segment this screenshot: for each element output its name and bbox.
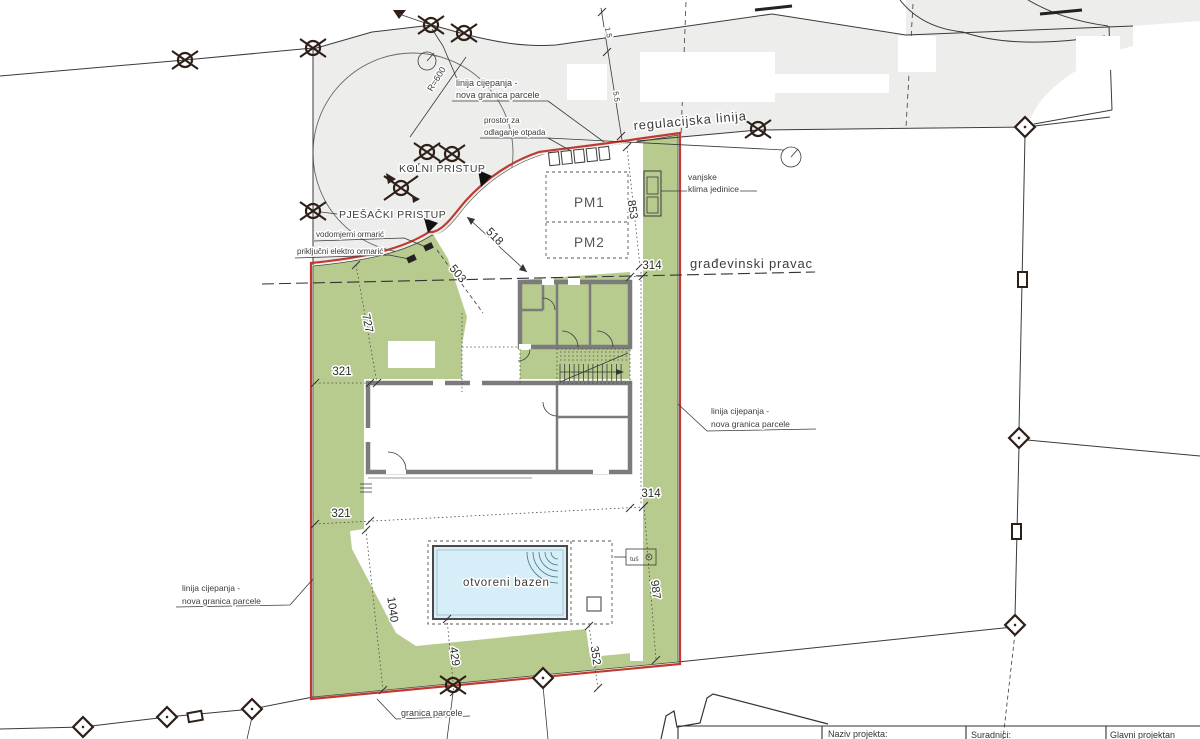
dim-314-lower: 314 bbox=[641, 488, 661, 500]
label-waste-area-1: prostor za bbox=[484, 116, 520, 125]
logo-outline bbox=[661, 694, 828, 739]
label-electric-cabinet: priključni elektro ormarić bbox=[297, 247, 383, 256]
label-parking-2: PM2 bbox=[574, 235, 605, 250]
label-split-line-right-1: linija cijepanja - bbox=[711, 406, 769, 416]
label-ac-units-1: vanjske bbox=[688, 172, 717, 182]
label-ac-units-2: klima jedinice bbox=[688, 184, 739, 194]
label-water-meter-cabinet: vodomjerni ormarić bbox=[316, 230, 384, 239]
redacted-label bbox=[388, 341, 435, 368]
label-parcel-boundary: granica parcele bbox=[401, 708, 463, 718]
dim-987: 987 bbox=[648, 579, 662, 600]
dim-314-upper: 314 bbox=[642, 260, 662, 272]
dim-321-upper: 321 bbox=[332, 366, 351, 378]
label-shower: tuš bbox=[630, 556, 639, 563]
label-pedestrian-access: PJEŠAČKI PRISTUP bbox=[339, 208, 446, 221]
label-waste-area-2: odlaganje otpada bbox=[484, 128, 546, 137]
title-block-collaborators: Suradnici: bbox=[971, 730, 1011, 739]
label-split-line-left-1: linija cijepanja - bbox=[182, 583, 240, 593]
label-split-line-right-2: nova granica parcele bbox=[711, 419, 790, 429]
dim-321-lower: 321 bbox=[331, 508, 350, 520]
label-parking-1: PM1 bbox=[574, 195, 605, 210]
title-block-chief-designer: Glavni projektan bbox=[1110, 730, 1175, 739]
label-building-line: građevinski pravac bbox=[690, 256, 813, 271]
label-split-line-top-1: linija cijepanja - bbox=[456, 78, 518, 88]
road-area bbox=[313, 0, 1200, 265]
label-vehicle-access: KOLNI PRISTUP bbox=[399, 163, 485, 175]
dim-5-5: 5.5 bbox=[611, 91, 622, 103]
label-open-pool: otvoreni bazen bbox=[463, 577, 550, 589]
dim-1-5: 1.5 bbox=[603, 26, 614, 38]
title-block-project-name: Naziv projekta: bbox=[828, 729, 888, 739]
label-split-line-top-2: nova granica parcele bbox=[456, 90, 540, 100]
site-plan-drawing: linija cijepanja - nova granica parcele … bbox=[0, 0, 1200, 739]
site-plan-page: linija cijepanja - nova granica parcele … bbox=[0, 0, 1200, 739]
label-split-line-left-2: nova granica parcele bbox=[182, 596, 261, 606]
title-block: Naziv projekta: Suradnici: Glavni projek… bbox=[661, 694, 1200, 739]
